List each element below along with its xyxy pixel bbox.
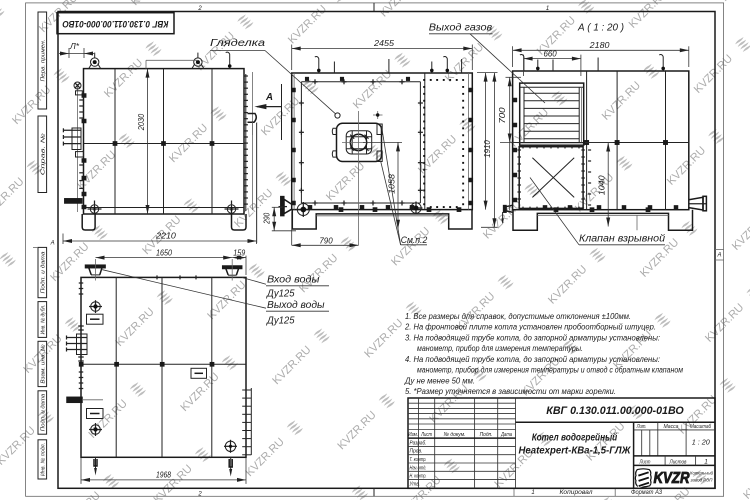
svg-text:KVZR.RU: KVZR.RU [389, 225, 432, 268]
svg-text:манометр, прибор для измерения: манометр, прибор для измерения температу… [417, 343, 583, 353]
svg-text:1: 1 [704, 458, 708, 465]
svg-text:Ду125: Ду125 [266, 316, 295, 327]
svg-text:Лит.: Лит. [636, 424, 647, 430]
svg-text:2180: 2180 [589, 40, 610, 50]
svg-text:2: 2 [197, 6, 202, 12]
svg-text:KVZR.RU: KVZR.RU [335, 409, 378, 452]
svg-text:KVZR.RU: KVZR.RU [87, 398, 130, 441]
svg-text:№ докум.: № докум. [444, 432, 466, 438]
svg-text:Изм.: Изм. [408, 432, 418, 438]
svg-text:700: 700 [497, 107, 507, 124]
svg-text:KVZR.RU: KVZR.RU [416, 133, 459, 176]
svg-text:1650: 1650 [156, 247, 172, 257]
svg-text:Копировал: Копировал [560, 489, 594, 496]
svg-text:KVZR.RU: KVZR.RU [270, 344, 313, 387]
svg-text:КВГ 0.130.011.00.000-01ВО: КВГ 0.130.011.00.000-01ВО [546, 405, 684, 417]
svg-text:KVZR.RU: KVZR.RU [351, 68, 394, 111]
svg-text:2210: 2210 [155, 230, 176, 240]
svg-text:2030: 2030 [136, 114, 146, 132]
svg-text:KVZR.RU: KVZR.RU [600, 80, 643, 123]
svg-text:КВГ 0.130.011.00.000-01ВО: КВГ 0.130.011.00.000-01ВО [63, 19, 169, 29]
svg-text:Вход воды: Вход воды [267, 274, 320, 285]
svg-text:Н. контр.: Н. контр. [410, 474, 427, 480]
svg-text:Справ. №: Справ. № [40, 133, 46, 175]
svg-text:Утв.: Утв. [409, 482, 420, 488]
svg-text:1. Все размеры для справок, до: 1. Все размеры для справок, допустимые о… [405, 311, 631, 321]
svg-text:2: 2 [197, 492, 202, 498]
svg-text:KVZR.RU: KVZR.RU [179, 371, 222, 414]
svg-text:Масштаб: Масштаб [690, 424, 712, 430]
svg-text:KVZR.RU: KVZR.RU [692, 53, 735, 96]
svg-text:KVZR.RU: KVZR.RU [75, 149, 118, 192]
svg-text:Т. контр.: Т. контр. [410, 457, 427, 463]
svg-text:А ( 1 : 20 ): А ( 1 : 20 ) [577, 22, 624, 34]
svg-text:790: 790 [319, 235, 333, 245]
svg-text:манометр, прибор для измерения: манометр, прибор для измерения температу… [417, 365, 683, 375]
svg-text:Нач.отд.: Нач.отд. [410, 465, 427, 471]
svg-text:660: 660 [544, 48, 557, 58]
svg-text:1968: 1968 [156, 470, 171, 480]
svg-text:Подп. и дата: Подп. и дата [40, 252, 46, 294]
svg-text:Пров.: Пров. [410, 449, 423, 455]
svg-text:KVZR.RU: KVZR.RU [0, 425, 38, 468]
svg-text:3. На подводящей трубе котла,: 3. На подводящей трубе котла, до запорно… [405, 332, 661, 342]
svg-text:Ду125: Ду125 [266, 289, 295, 300]
svg-text:Лист: Лист [420, 432, 432, 438]
svg-text:KVZR.RU: KVZR.RU [665, 145, 708, 188]
svg-text:KVZR.RU: KVZR.RU [362, 317, 405, 360]
svg-text:А: А [716, 253, 721, 259]
svg-text:Подп.: Подп. [480, 432, 493, 438]
svg-text:2455: 2455 [373, 38, 394, 48]
svg-text:KVZR.RU: KVZR.RU [113, 306, 156, 349]
svg-text:А: А [265, 92, 273, 103]
svg-text:завод РЭП: завод РЭП [690, 478, 713, 484]
svg-text:KVZR.RU: KVZR.RU [0, 176, 27, 219]
svg-text:KVZR.RU: KVZR.RU [703, 302, 746, 345]
svg-text:KVZR.RU: KVZR.RU [627, 0, 670, 31]
svg-text:KVZR.RU: KVZR.RU [129, 0, 172, 8]
svg-text:Клапан взрывной: Клапан взрывной [579, 234, 665, 245]
svg-text:KVZR.RU: KVZR.RU [324, 160, 367, 203]
svg-text:Дата: Дата [500, 432, 512, 438]
svg-text:KVZR.RU: KVZR.RU [546, 263, 589, 306]
svg-text:2. На фронтовой плите котла ус: 2. На фронтовой плите котла установлен п… [404, 322, 656, 332]
svg-text:KVZR.RU: KVZR.RU [152, 463, 195, 500]
svg-text:1 : 20: 1 : 20 [692, 439, 710, 446]
svg-text:Ду не менее 50 мм.: Ду не менее 50 мм. [404, 375, 475, 385]
svg-text:Лист: Лист [639, 459, 651, 465]
svg-text:1040: 1040 [596, 175, 606, 195]
svg-text:Котел водогрейный: Котел водогрейный [532, 432, 618, 444]
svg-text:Выход газов: Выход газов [429, 23, 493, 34]
svg-text:Листов: Листов [669, 459, 687, 465]
svg-text:1910: 1910 [482, 140, 492, 158]
svg-text:См.п.2: См.п.2 [401, 235, 428, 246]
svg-text:Heatexpert-КВа-1,5-ГЛЖ: Heatexpert-КВа-1,5-ГЛЖ [519, 445, 632, 457]
svg-text:Масса: Масса [664, 424, 680, 430]
svg-text:4. На подводящей трубе котла,: 4. На подводящей трубе котла, до запорно… [405, 354, 661, 364]
svg-text:KVZR.RU: KVZR.RU [286, 3, 329, 46]
svg-text:290: 290 [261, 212, 271, 224]
svg-text:Формат А3: Формат А3 [631, 489, 663, 496]
svg-text:Взам. инв. №: Взам. инв. № [40, 344, 46, 383]
svg-text:KVZR.RU: KVZR.RU [730, 210, 750, 253]
svg-text:Котельный: Котельный [690, 470, 713, 477]
svg-text:KVZR.RU: KVZR.RU [60, 490, 103, 500]
svg-text:А: А [50, 241, 55, 247]
svg-text:KVZR.RU: KVZR.RU [244, 436, 287, 479]
svg-text:Перв. примен.: Перв. примен. [40, 39, 46, 81]
svg-text:Подп. и дата: Подп. и дата [40, 394, 46, 431]
svg-text:Инв. № подл.: Инв. № подл. [40, 443, 46, 476]
svg-text:5. *Размер уточняется в зависи: 5. *Размер уточняется в зависимости от м… [405, 386, 616, 396]
svg-text:KVZR.RU: KVZR.RU [102, 57, 145, 100]
svg-text:1: 1 [546, 6, 549, 12]
svg-text:KVZR.RU: KVZR.RU [741, 459, 750, 500]
svg-text:Гляделка: Гляделка [210, 38, 266, 49]
svg-text:1: 1 [531, 490, 534, 496]
svg-text:Выход воды: Выход воды [267, 300, 325, 311]
svg-text:KVZR: KVZR [654, 470, 691, 487]
svg-text:Разраб.: Разраб. [410, 440, 427, 446]
svg-text:159: 159 [233, 247, 245, 257]
svg-text:Л*: Л* [69, 42, 80, 51]
svg-text:Инв. № дубл.: Инв. № дубл. [40, 305, 46, 335]
